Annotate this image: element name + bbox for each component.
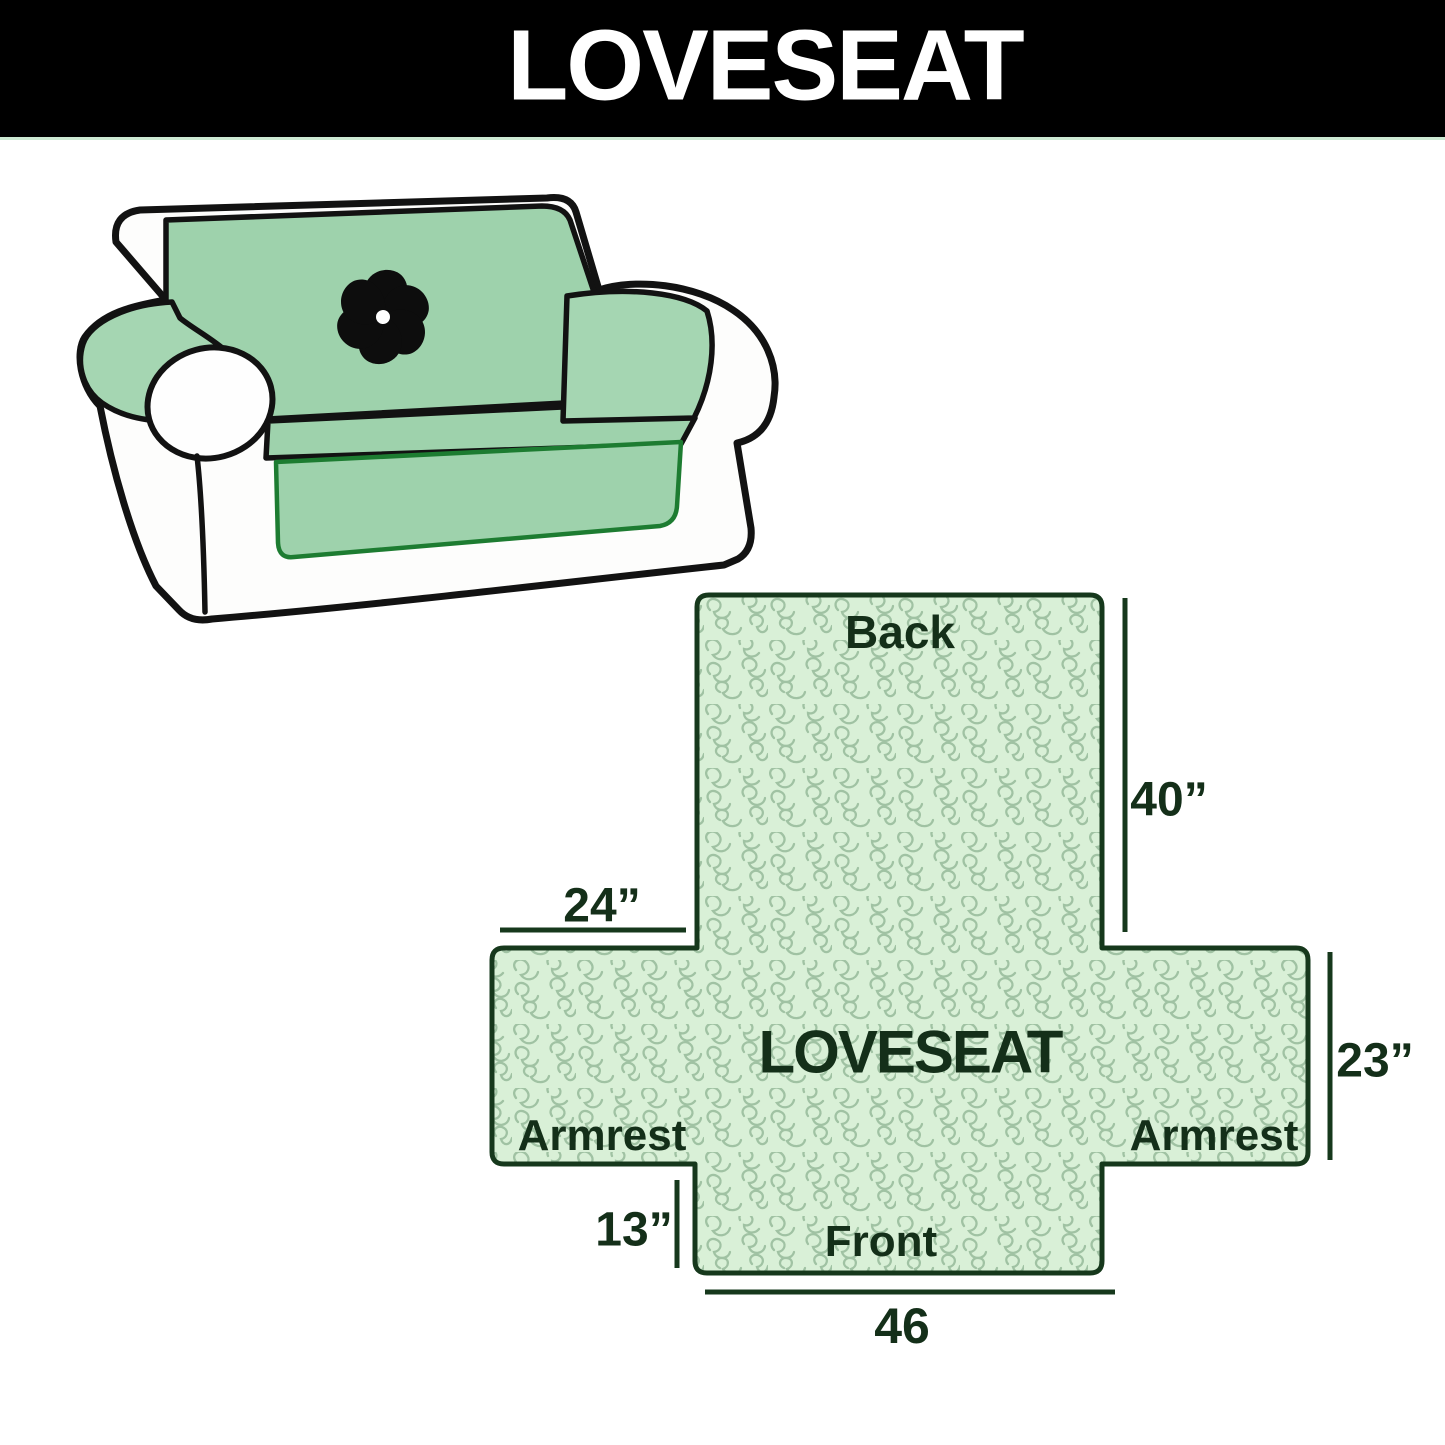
side-depth-dimension: 23” — [1336, 1034, 1413, 1089]
center-label: LOVESEAT — [759, 1018, 1062, 1087]
armrest-left-label: Armrest — [518, 1111, 687, 1161]
front-section-label: Front — [825, 1217, 937, 1267]
cover-dimensions-diagram — [480, 580, 1380, 1310]
front-drop-dimension: 13” — [595, 1203, 672, 1258]
sofa-right-arm-cover — [563, 291, 712, 421]
cover-outline-shape — [492, 595, 1308, 1273]
header-title: LOVESEAT — [507, 9, 1023, 124]
front-width-dimension: 46 — [874, 1297, 930, 1355]
armrest-right-label: Armrest — [1130, 1111, 1299, 1161]
page: LOVESEAT — [0, 0, 1445, 1445]
armrest-width-dimension: 24” — [563, 879, 640, 934]
back-section-label: Back — [845, 605, 955, 659]
back-height-dimension: 40” — [1130, 773, 1207, 828]
header-bar: LOVESEAT — [0, 0, 1445, 140]
